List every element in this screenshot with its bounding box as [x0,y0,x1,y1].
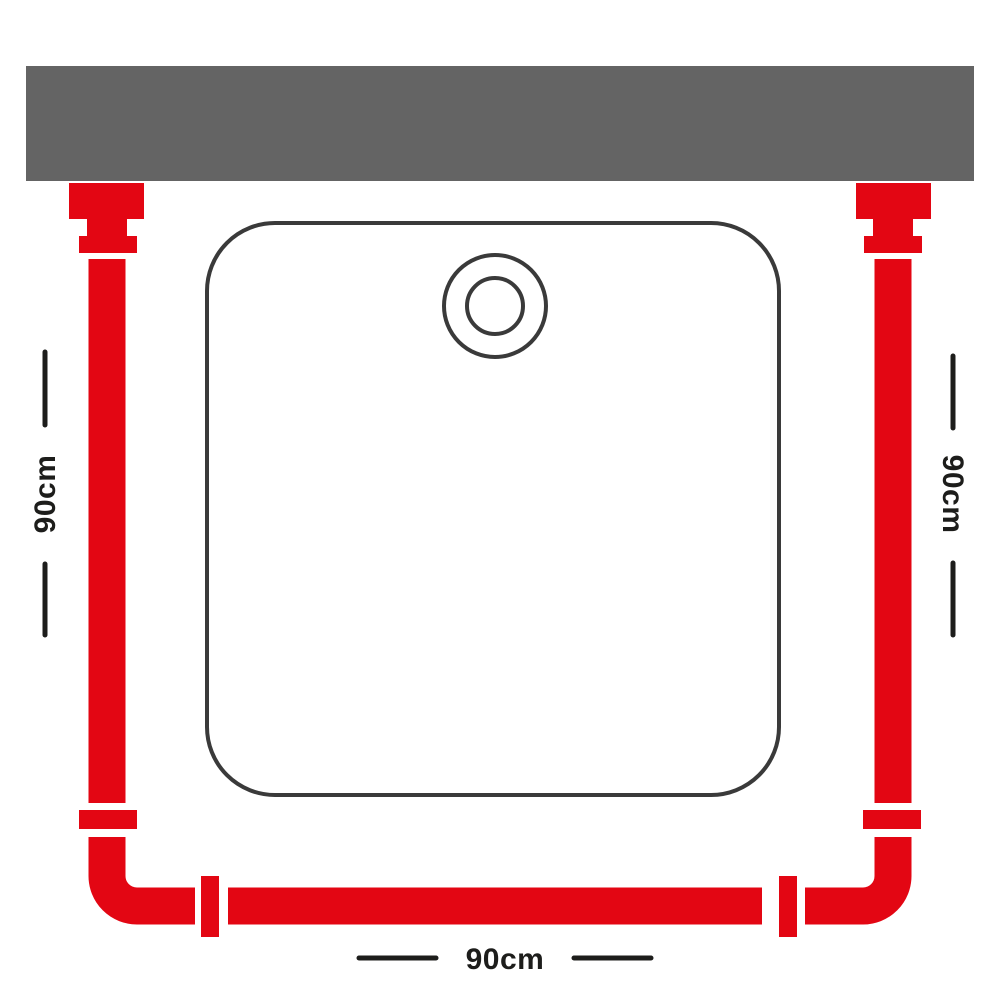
dimension-left-label: 90cm [29,455,62,534]
drain-inner-ring [467,278,523,334]
drain-outer-ring [444,255,546,357]
rail-right-coupling [863,810,921,829]
left-bracket-plate [69,183,144,219]
left-ceiling-bracket [69,183,144,253]
right-bracket-flange [864,236,922,253]
drain [444,255,546,357]
rail-left-coupling [79,810,137,829]
right-ceiling-bracket [856,183,931,253]
dimension-left: 90cm [29,352,62,635]
rail-right-elbow [805,837,893,906]
left-bracket-stem [87,219,127,236]
left-bracket-flange [79,236,137,253]
right-bracket-stem [873,219,913,236]
ceiling-bar [26,66,974,181]
diagram-canvas: 90cm 90cm 90cm [0,0,1000,1000]
dimension-right-label: 90cm [936,455,969,534]
dimension-bottom-label: 90cm [466,943,545,976]
shower-tray-outline [207,223,779,795]
rail-left-elbow [107,837,195,906]
dimension-right: 90cm [936,356,969,635]
rail-bottom-right-coupling [779,876,797,937]
rail-bottom-left-coupling [201,876,219,937]
right-bracket-plate [856,183,931,219]
product-dimension-diagram: 90cm 90cm 90cm [0,0,1000,1000]
dimension-bottom: 90cm [359,943,651,976]
